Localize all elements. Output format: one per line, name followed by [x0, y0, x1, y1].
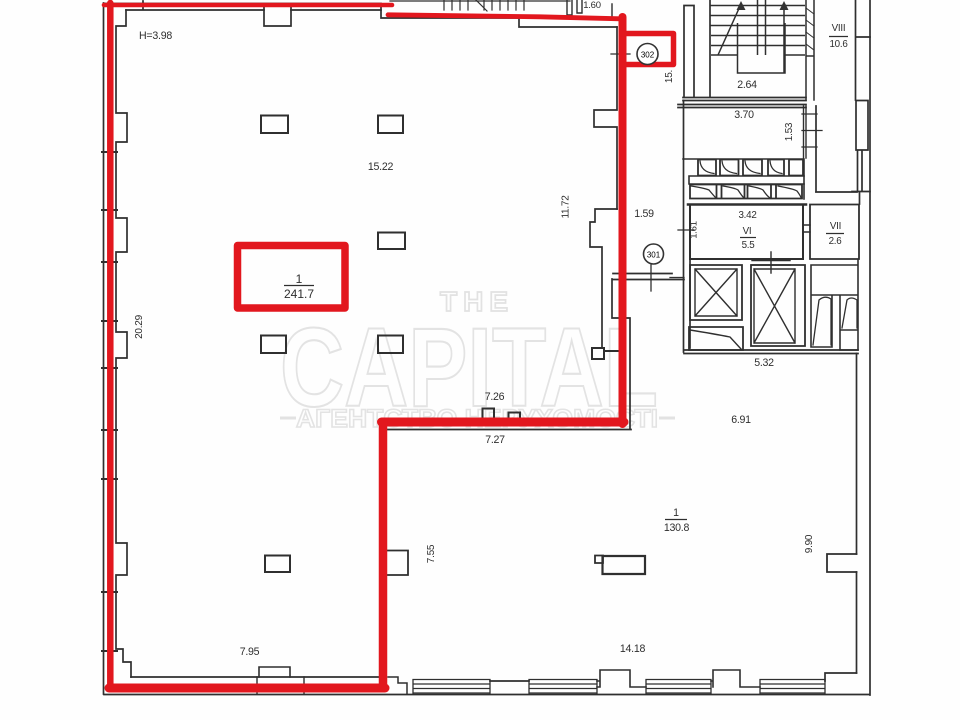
svg-text:11.72: 11.72: [561, 195, 572, 219]
svg-text:H=3.98: H=3.98: [139, 30, 172, 42]
svg-text:VI: VI: [743, 226, 752, 237]
svg-text:VIII: VIII: [832, 23, 846, 34]
svg-text:1: 1: [296, 272, 303, 286]
svg-text:2.64: 2.64: [737, 79, 757, 91]
svg-text:301: 301: [647, 251, 661, 260]
svg-text:VII: VII: [830, 221, 841, 232]
svg-text:7.26: 7.26: [485, 391, 505, 403]
svg-text:3.42: 3.42: [738, 210, 756, 221]
svg-text:5.5: 5.5: [742, 240, 756, 251]
svg-text:5.32: 5.32: [754, 357, 774, 369]
svg-text:3.70: 3.70: [734, 109, 754, 121]
svg-text:7.27: 7.27: [485, 434, 505, 446]
svg-text:1.59: 1.59: [634, 208, 654, 220]
svg-text:1: 1: [673, 507, 679, 519]
svg-text:15.: 15.: [664, 70, 675, 83]
svg-text:9.90: 9.90: [804, 534, 815, 553]
svg-text:7.55: 7.55: [426, 544, 437, 563]
svg-text:15.22: 15.22: [368, 161, 394, 173]
svg-text:241.7: 241.7: [284, 287, 314, 301]
svg-text:1.53: 1.53: [784, 122, 795, 141]
svg-text:302: 302: [641, 51, 655, 60]
svg-text:1.61: 1.61: [689, 221, 700, 239]
svg-text:2.6: 2.6: [829, 236, 843, 247]
svg-text:20.29: 20.29: [134, 314, 145, 338]
svg-text:14.18: 14.18: [620, 643, 646, 655]
svg-text:7.95: 7.95: [240, 646, 260, 658]
svg-text:6.91: 6.91: [731, 414, 751, 426]
svg-text:130.8: 130.8: [664, 522, 690, 534]
svg-text:1.60: 1.60: [583, 0, 601, 11]
svg-text:10.6: 10.6: [829, 39, 848, 50]
